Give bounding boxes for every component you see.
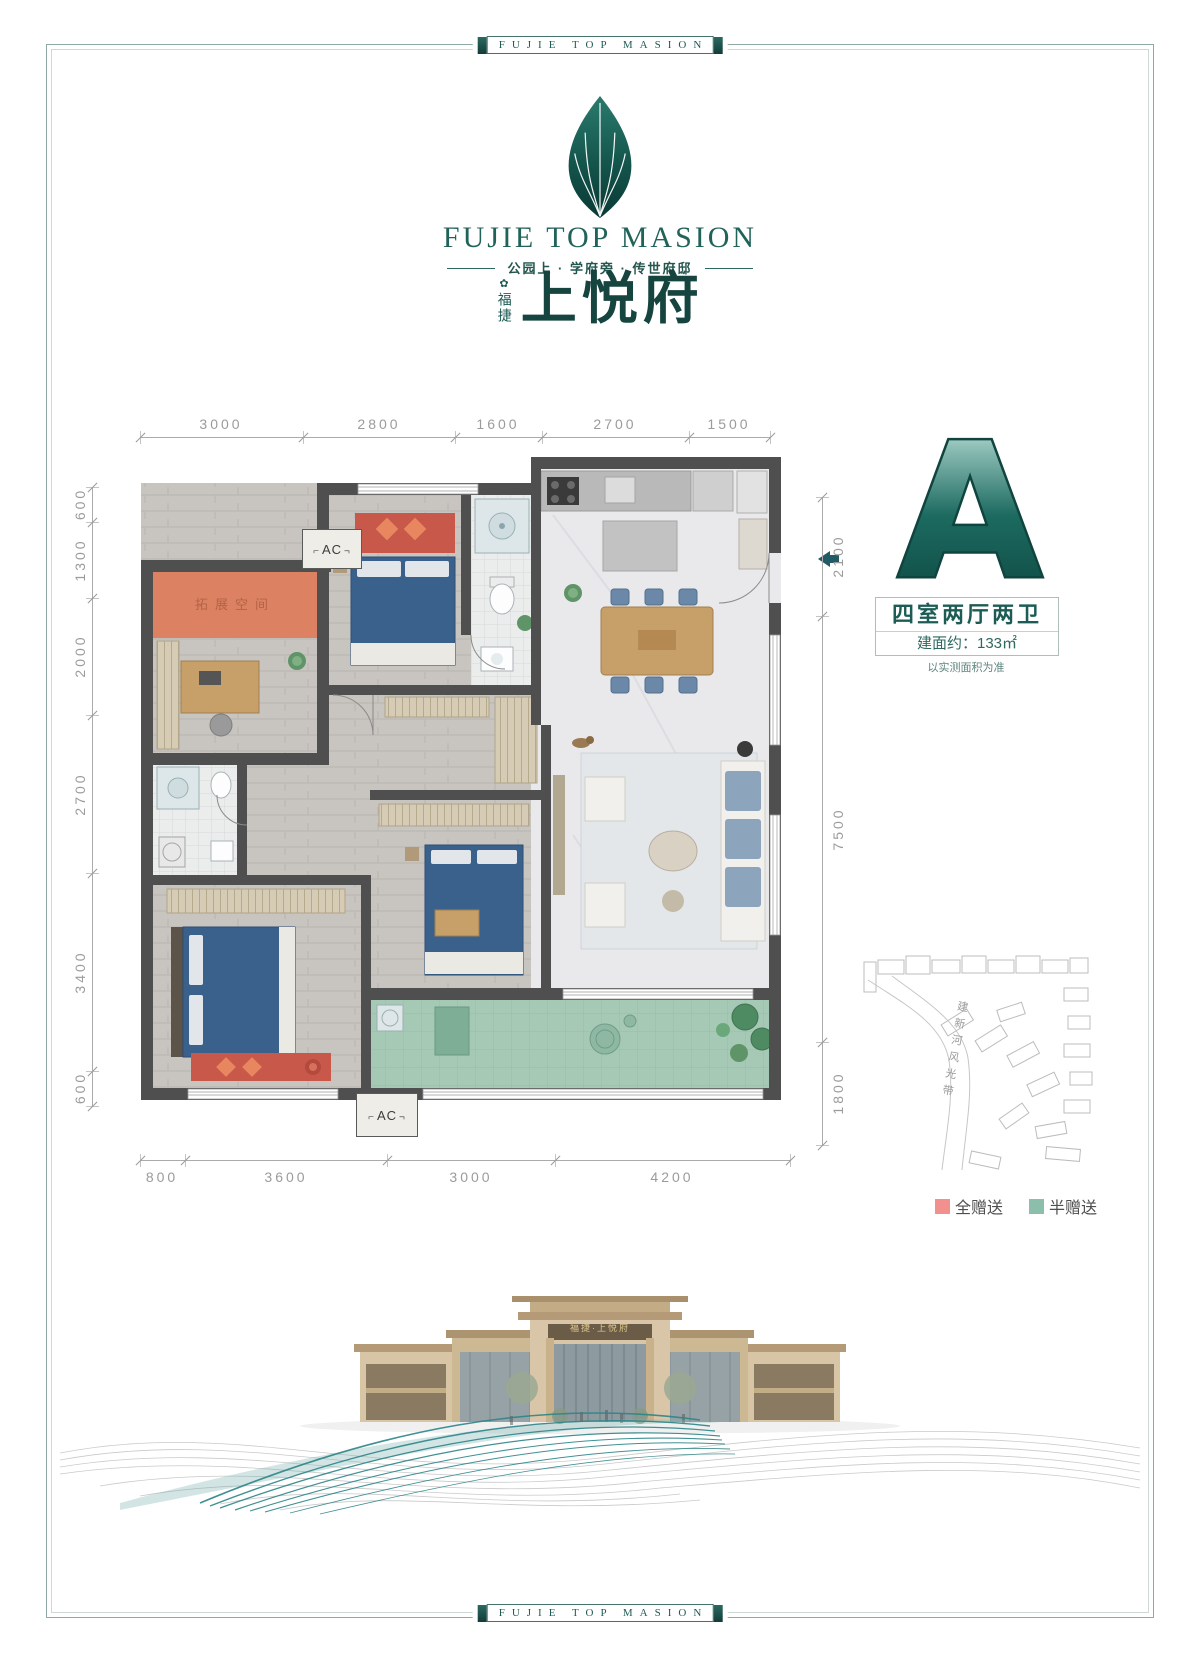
frame-plaque-bottom: FUJIE TOP MASION: [473, 1602, 728, 1624]
brand-name-cn-row: ✿ 福捷 上悦府: [0, 272, 1200, 328]
legend-item-full-gift: 全赠送: [935, 1194, 1003, 1218]
site-plan: [850, 928, 1095, 1173]
dim-label: 3000: [449, 1169, 492, 1185]
dim-label: 2100: [830, 534, 846, 577]
dims-top: 3000 2800 1600 2700 1500: [140, 437, 770, 438]
full-gift-label: 全赠送: [955, 1194, 1003, 1218]
dim-label: 600: [72, 1072, 88, 1104]
unit-block-letter: A: [890, 424, 1050, 586]
dim-label: 1300: [72, 538, 88, 581]
gift-legend: 全赠送 半赠送: [935, 1194, 1097, 1218]
dim-label: 2000: [72, 634, 88, 677]
expansion-space-label: 拓展空间: [160, 594, 310, 613]
leaf-logo-icon: [543, 96, 657, 218]
brand-name-cn: 上悦府: [521, 272, 704, 328]
ac-unit-top: AC: [302, 529, 362, 569]
dim-label: 2800: [357, 416, 400, 432]
living-room: [553, 736, 765, 949]
ac-label: AC: [313, 542, 351, 557]
ac-unit-bottom: AC: [356, 1093, 418, 1137]
ac-label: AC: [368, 1108, 406, 1123]
unit-layout-type: 四室两厅两卫: [876, 598, 1058, 632]
unit-disclaimer: 以实测面积为准: [875, 659, 1057, 675]
frame-plaque-top: FUJIE TOP MASION: [473, 34, 728, 56]
brand-prefix: 福捷: [496, 292, 511, 324]
dims-left: 600 1300 2000 2700 3400 600: [92, 487, 93, 1107]
dims-bottom: 800 3600 3000 4200: [140, 1160, 790, 1161]
plaque-cap-icon: [713, 1605, 722, 1622]
dim-label: 1800: [830, 1071, 846, 1114]
block-letter-text: A: [898, 424, 1042, 586]
legend-item-half-gift: 半赠送: [1029, 1194, 1097, 1218]
gray-wave-lines: [60, 1431, 1140, 1510]
plaque-cap-icon: [478, 1605, 487, 1622]
dim-label: 7500: [830, 807, 846, 850]
dim-label: 2700: [72, 772, 88, 815]
half-gift-swatch: [1029, 1199, 1044, 1214]
floor-plan: [133, 455, 793, 1105]
clubhouse-rendering: [60, 1268, 1140, 1528]
dim-label: 3400: [72, 950, 88, 993]
brand-name-en: FUJIE TOP MASION: [0, 221, 1200, 255]
clubhouse-sign: 福捷·上悦府: [548, 1321, 652, 1334]
dim-label: 3000: [199, 416, 242, 432]
dim-label: 600: [72, 488, 88, 520]
full-gift-swatch: [935, 1199, 950, 1214]
frame-plaque-label: FUJIE TOP MASION: [487, 1604, 714, 1622]
frame-plaque-label: FUJIE TOP MASION: [487, 36, 714, 54]
dim-label: 3600: [264, 1169, 307, 1185]
flower-seal-icon: ✿: [499, 279, 508, 290]
brand-prefix-column: ✿ 福捷: [496, 279, 511, 324]
dim-label: 1500: [707, 416, 750, 432]
plaque-cap-icon: [713, 37, 722, 54]
plaque-cap-icon: [478, 37, 487, 54]
unit-info-box: 四室两厅两卫 建面约：133㎡: [875, 597, 1059, 656]
dim-label: 4200: [650, 1169, 693, 1185]
dim-label: 2700: [593, 416, 636, 432]
dim-label: 800: [146, 1169, 178, 1185]
dims-right: 2100 7500 1800: [822, 497, 823, 1145]
dim-label: 1600: [476, 416, 519, 432]
unit-area: 建面约：133㎡: [876, 632, 1058, 655]
poster-page: FUJIE TOP MASION FUJIE TOP MASION FUJIE …: [0, 0, 1200, 1662]
half-gift-label: 半赠送: [1049, 1194, 1097, 1218]
